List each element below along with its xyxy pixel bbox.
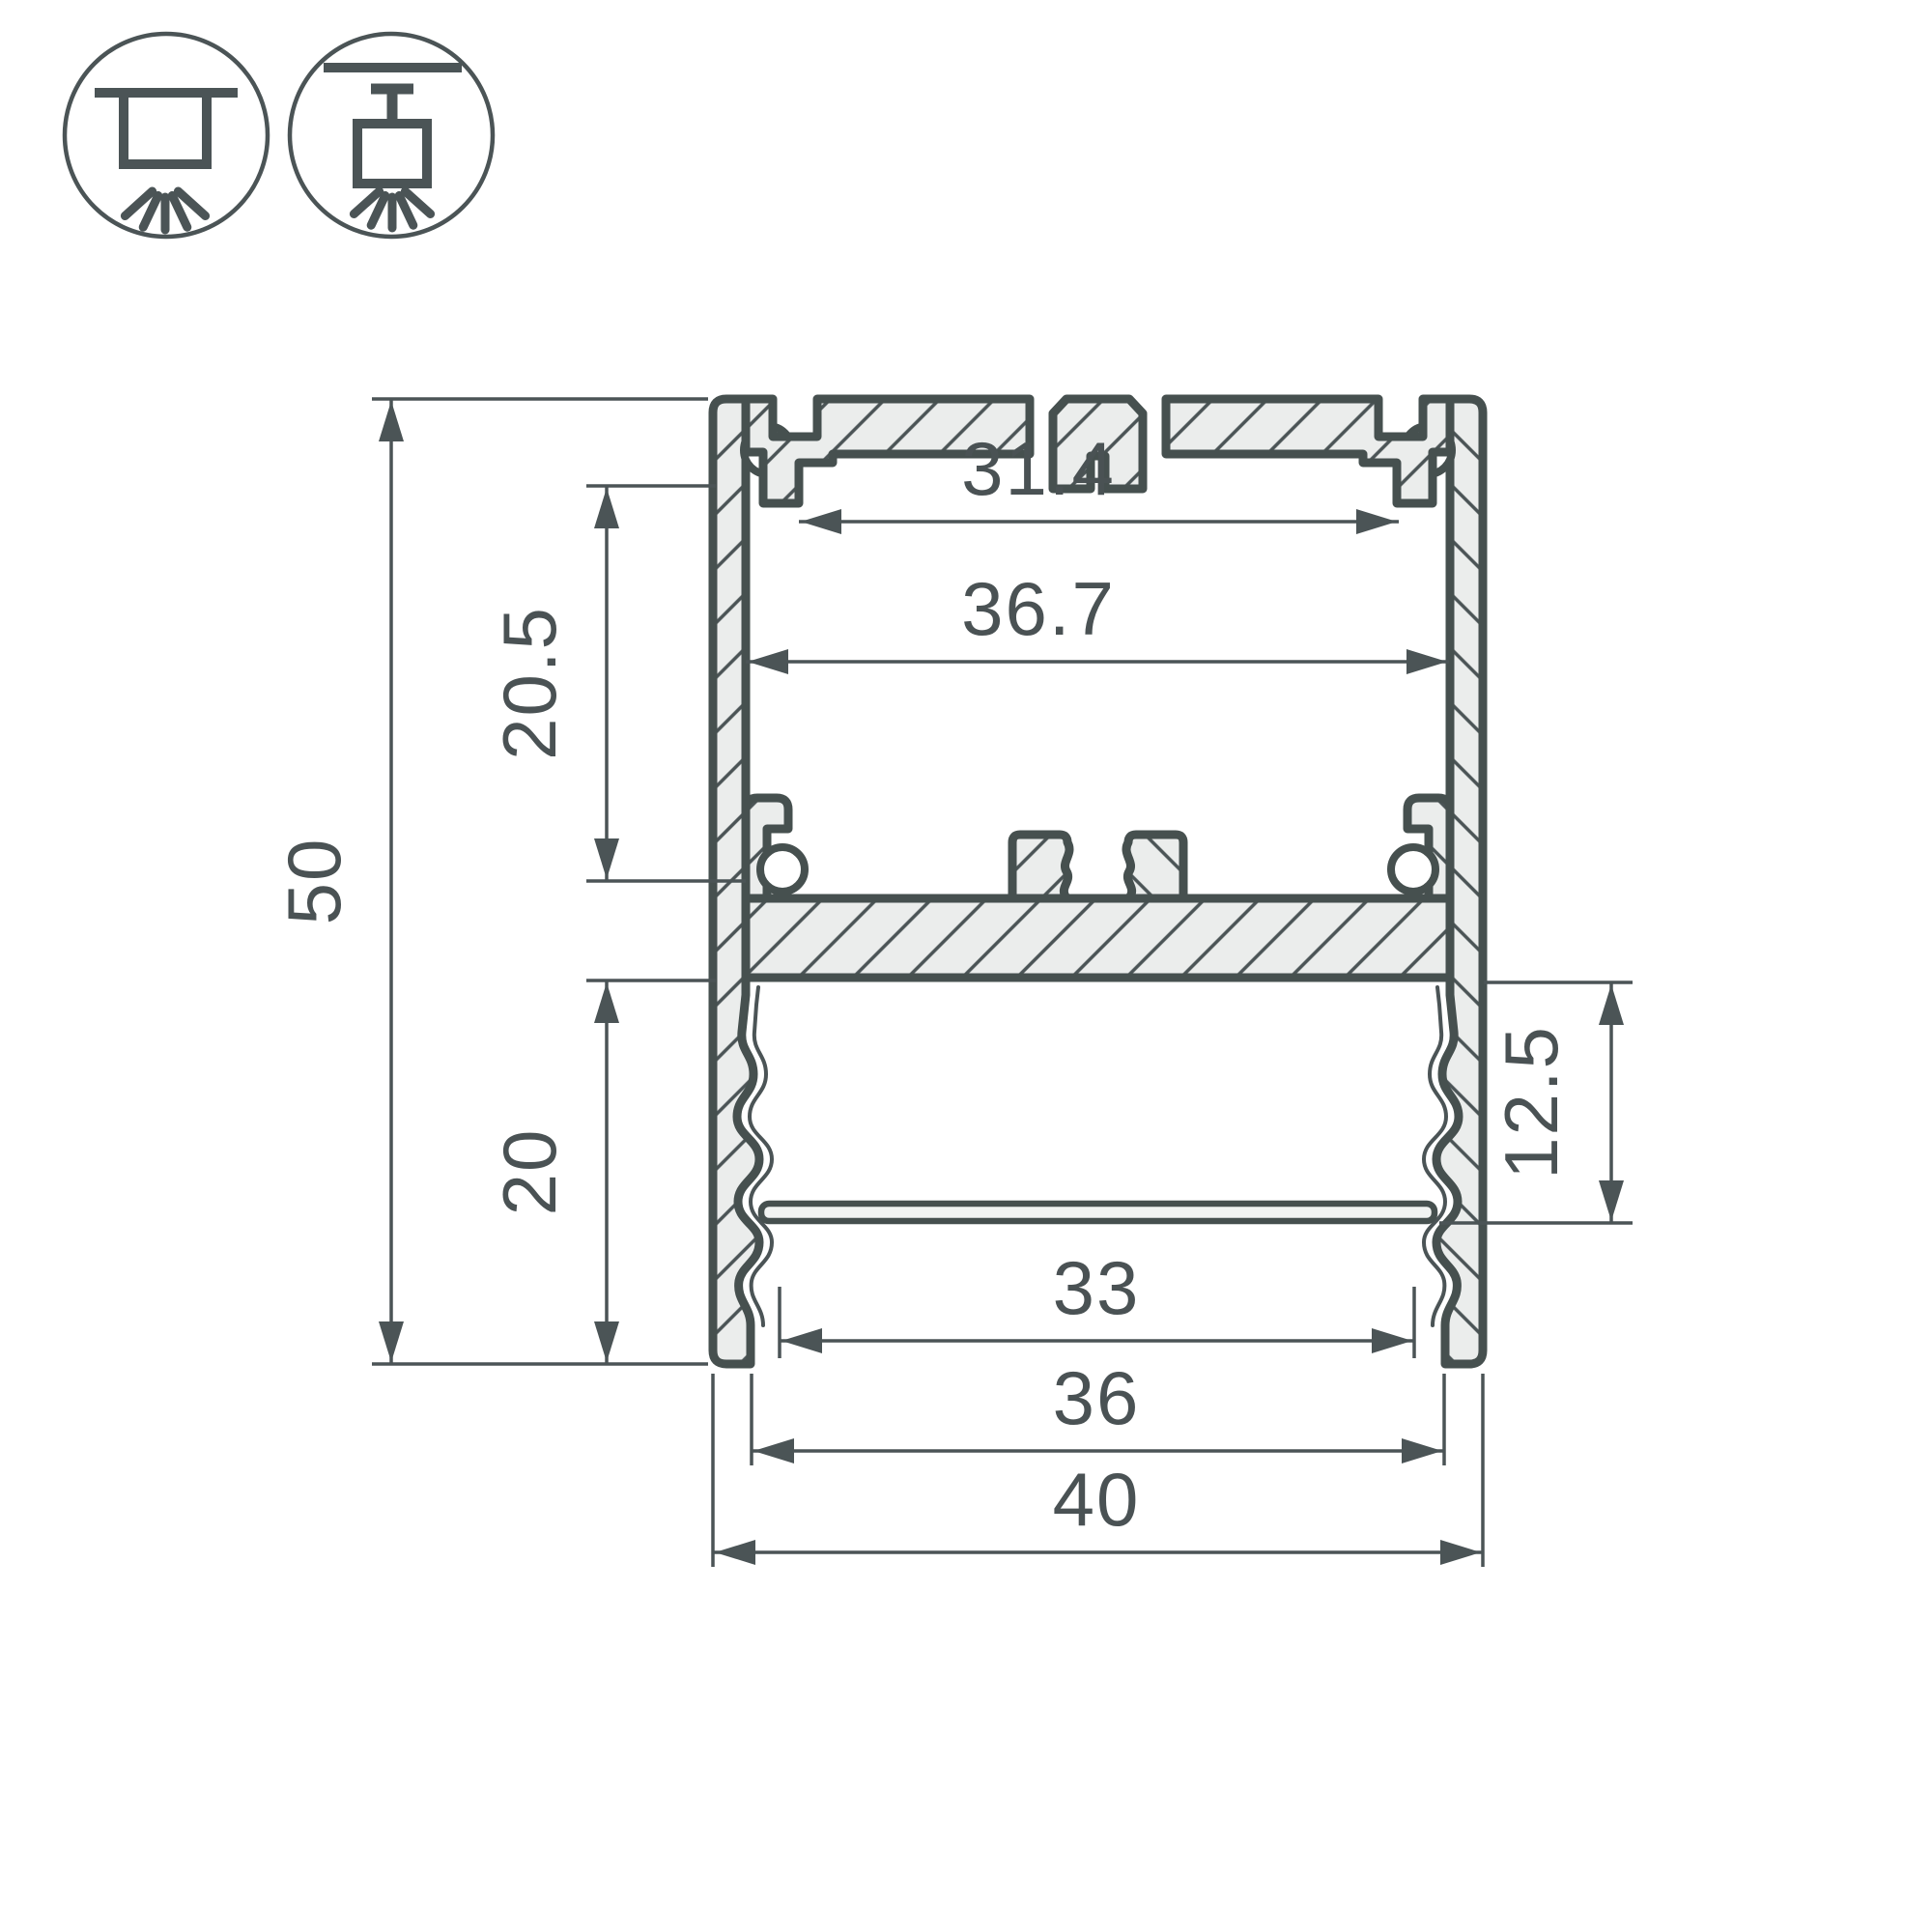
light-rays-icon: [125, 191, 205, 230]
dim-36-label: 36: [1053, 1355, 1141, 1440]
light-rays-icon: [354, 191, 430, 228]
dim-bottom-opening-width: 36: [752, 1355, 1444, 1463]
dim-upper-cavity-width: 36.7: [746, 566, 1449, 674]
dim-lens-width: 33: [780, 1245, 1414, 1353]
led-shelf-plate: [746, 898, 1450, 978]
technical-drawing-page: 50 20.5 20 12.5 31.4: [0, 0, 1932, 1932]
dim-lens-recess-depth: 12.5: [1489, 982, 1624, 1223]
snap-channel-hole: [760, 847, 805, 892]
dim-overall-width: 40: [713, 1457, 1483, 1565]
dim-31-4-label: 31.4: [961, 426, 1116, 511]
profile-cross-section: [713, 399, 1483, 1364]
suspended-pendant-mount-icon: [290, 34, 493, 237]
dim-lower-cavity-height: 20: [487, 980, 619, 1364]
top-cap-right-plate: [1166, 399, 1450, 503]
surface-ceiling-mount-icon: [65, 34, 268, 237]
dim-40-label: 40: [1053, 1457, 1141, 1542]
dim-50-label: 50: [271, 838, 356, 925]
dim-36-7-label: 36.7: [961, 566, 1116, 651]
dimensions: 50 20.5 20 12.5 31.4: [271, 399, 1633, 1567]
dim-20-5-label: 20.5: [487, 606, 572, 760]
dim-33-label: 33: [1053, 1245, 1141, 1330]
diffuser-lens: [761, 1204, 1435, 1221]
dim-12-5-label: 12.5: [1489, 1025, 1574, 1179]
dim-overall-height: 50: [271, 399, 404, 1364]
dim-20-label: 20: [487, 1128, 572, 1216]
mount-icons: [65, 34, 493, 237]
screw-channel-tab: [1126, 835, 1183, 898]
screw-channel-tab: [1012, 835, 1069, 898]
snap-channel-hole: [1391, 847, 1435, 892]
profile-drawing-canvas: 50 20.5 20 12.5 31.4: [0, 0, 1932, 1932]
dim-upper-cavity-height: 20.5: [487, 486, 619, 881]
